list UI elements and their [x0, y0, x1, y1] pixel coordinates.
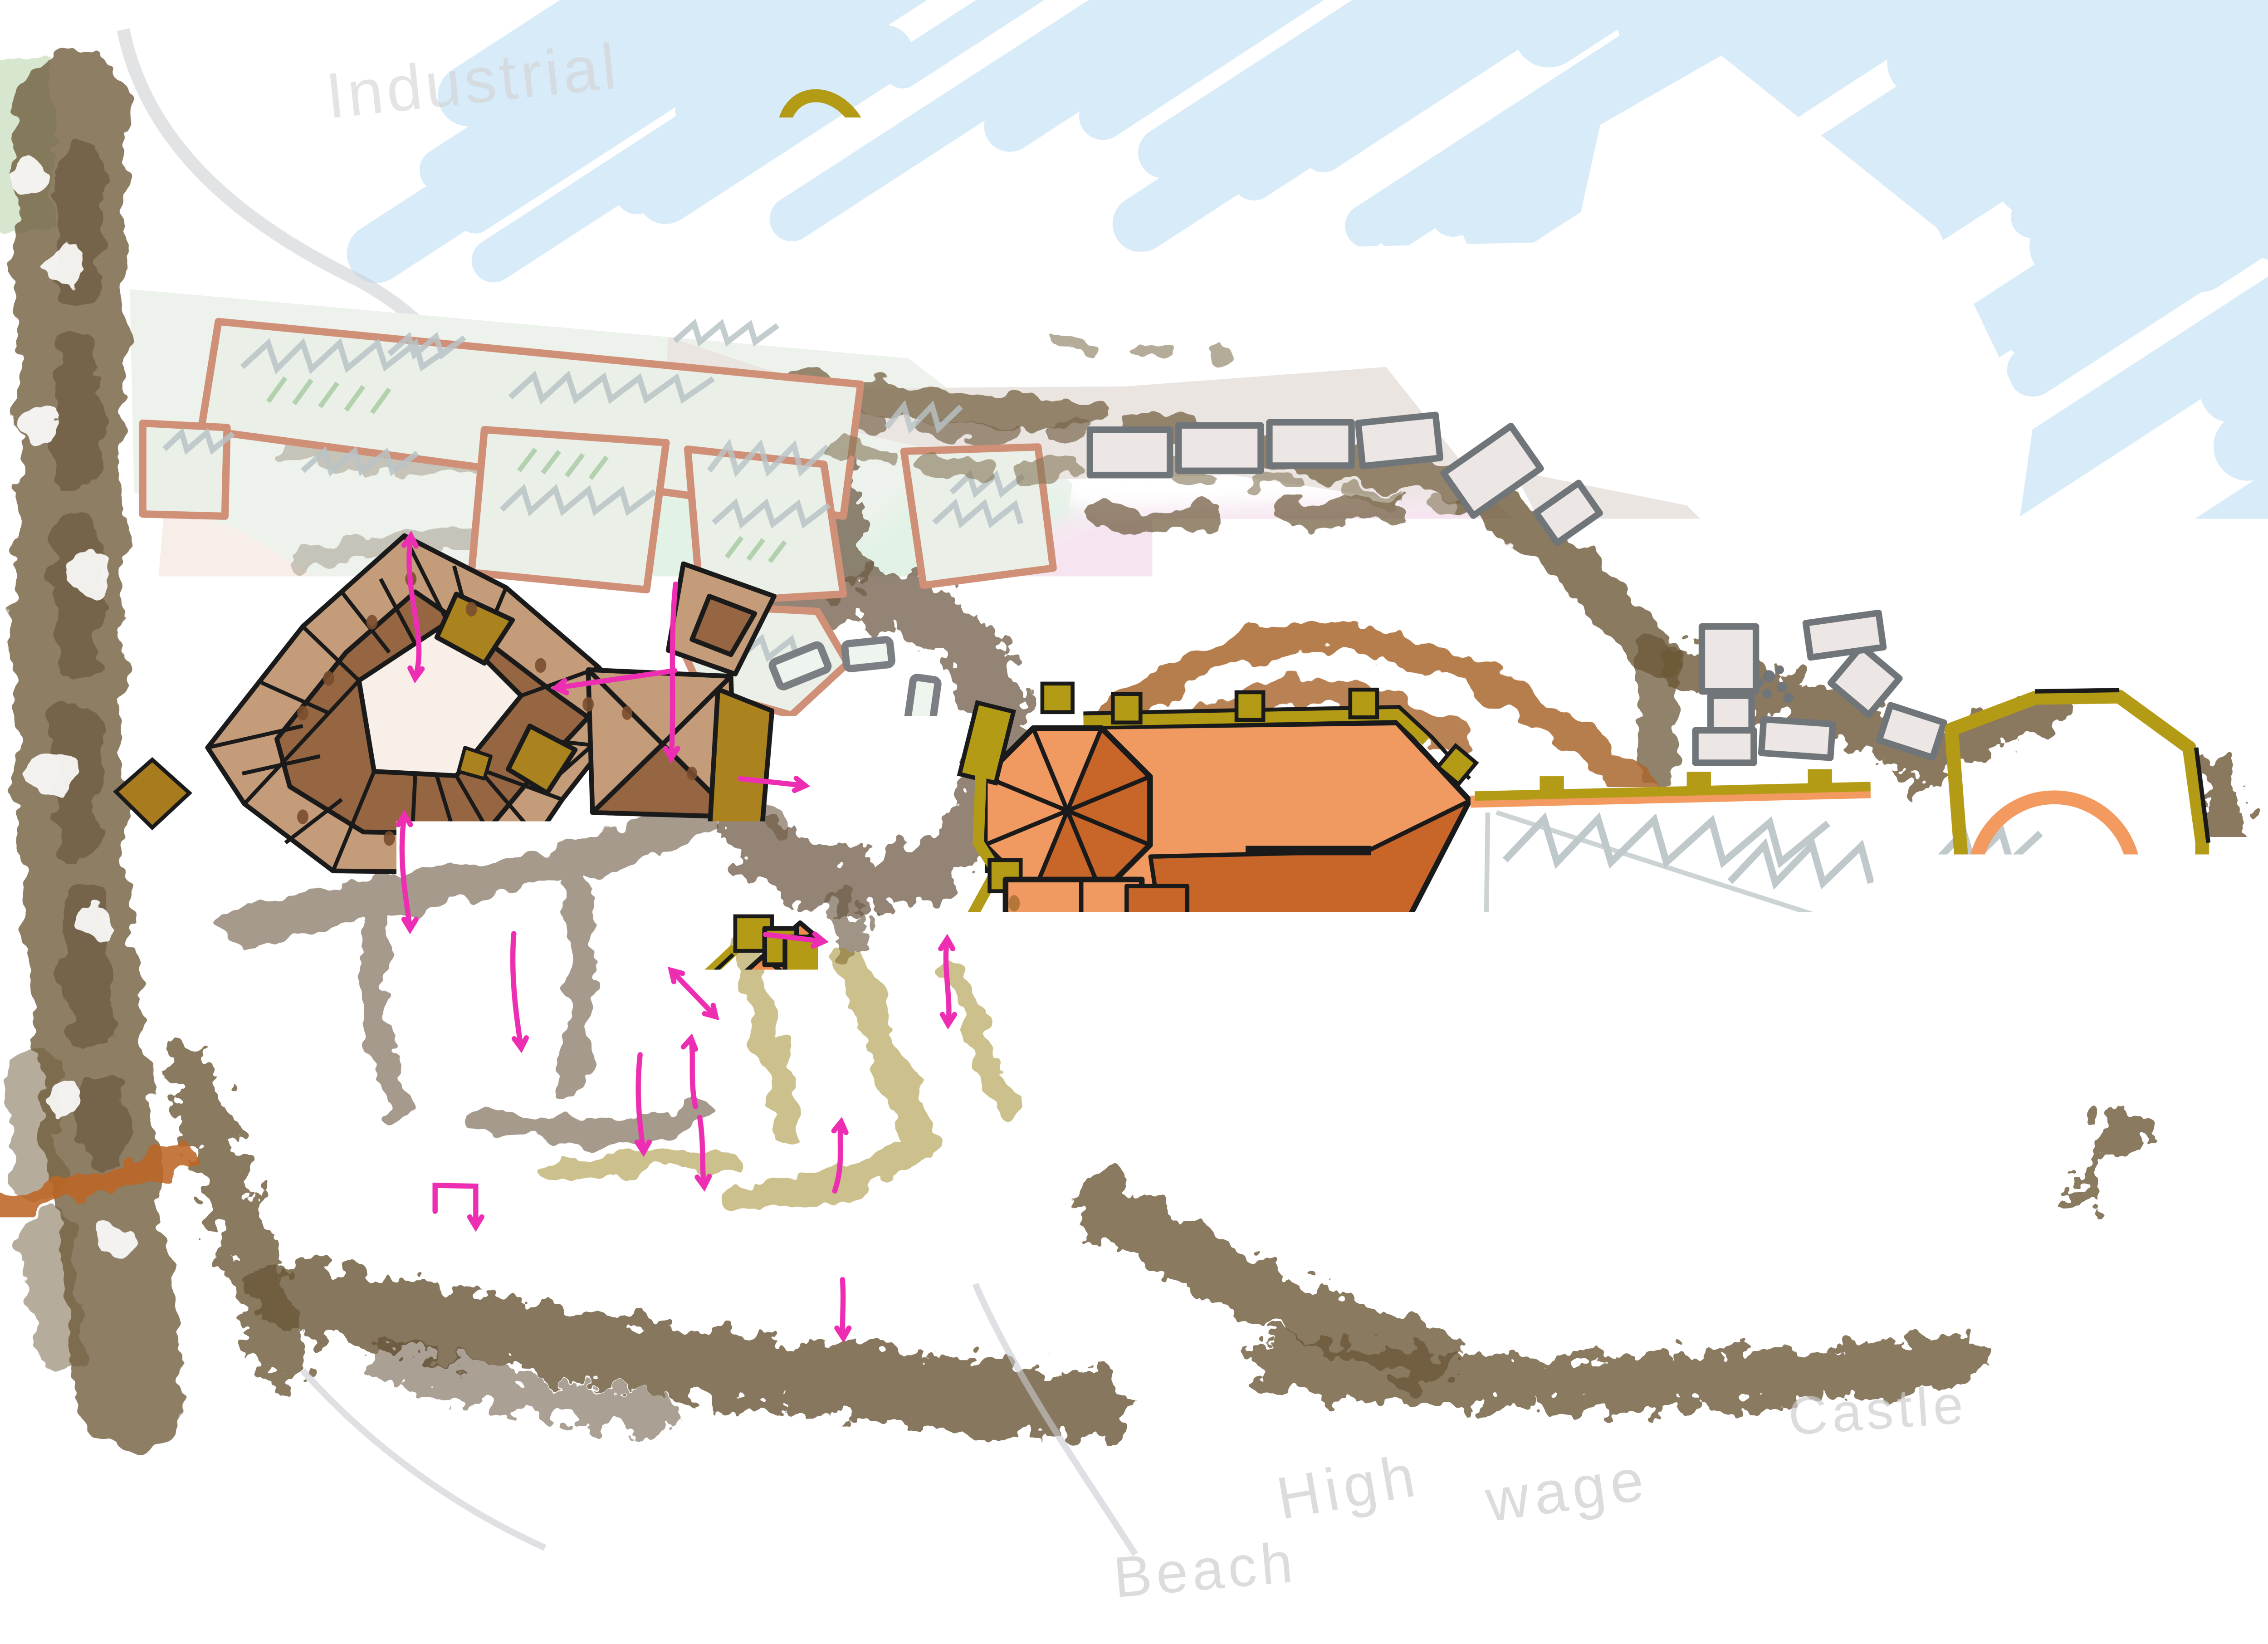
- svg-text:Castle: Castle: [1786, 1374, 1969, 1447]
